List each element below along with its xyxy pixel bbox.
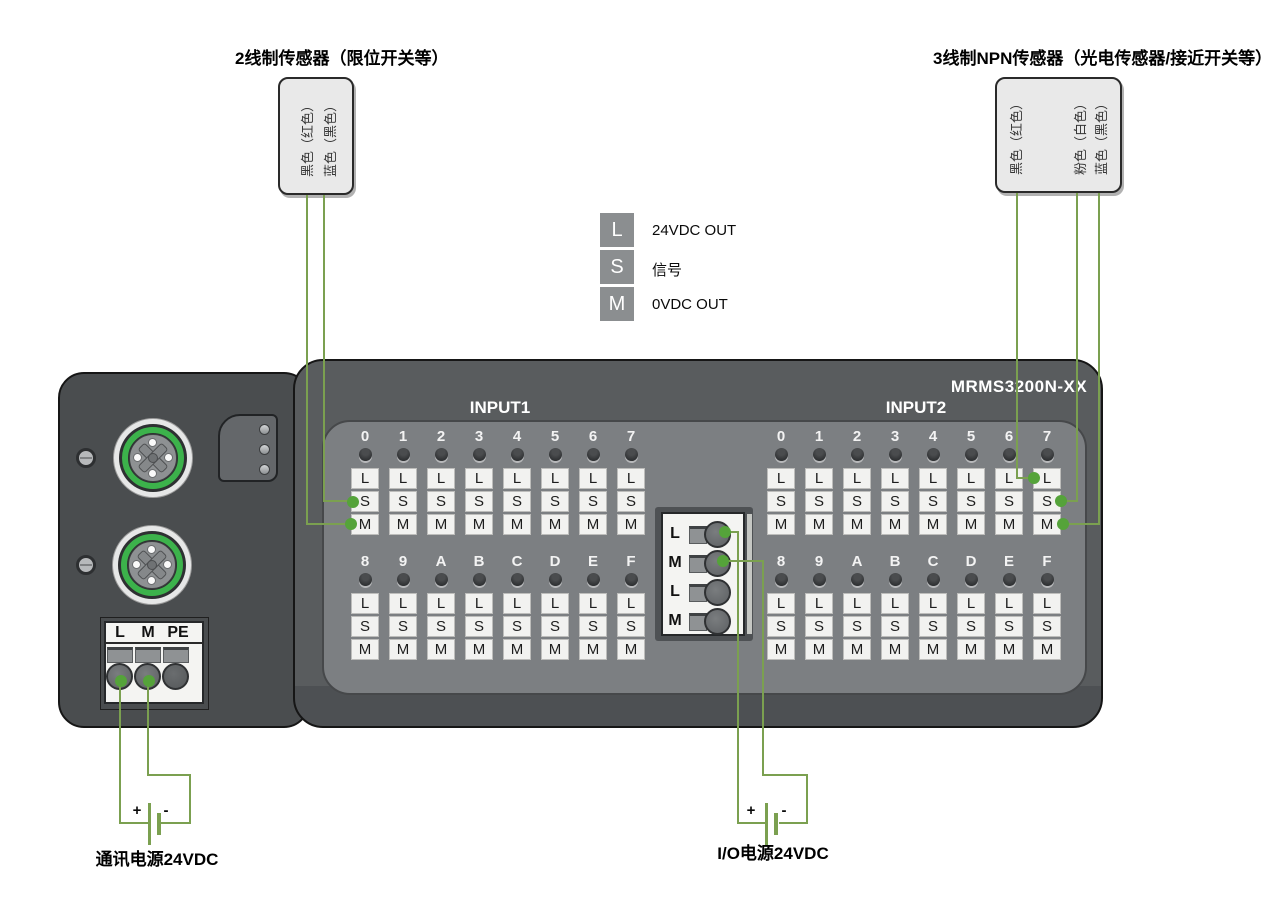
device-model-label: MRMS3200N-XX: [939, 377, 1099, 397]
sensor3-wire-label-blue: 蓝色（黑色）: [1094, 81, 1110, 191]
wire-io-m-jog: [762, 774, 808, 776]
channel-led-indicator: [511, 573, 524, 586]
comm-battery-minus-sign: -: [158, 802, 174, 819]
terminal-s-box[interactable]: S: [1033, 616, 1061, 637]
terminal-m-box[interactable]: M: [541, 639, 569, 660]
power-terminal-hole-pe[interactable]: [162, 663, 189, 690]
m12-pin: [147, 545, 156, 554]
legend-key-l: L: [600, 213, 634, 247]
terminal-s-box[interactable]: S: [805, 616, 833, 637]
legend-label-m: 0VDC OUT: [652, 296, 728, 313]
channel-number: 3: [475, 428, 483, 446]
terminal-l-box[interactable]: L: [957, 468, 985, 489]
channel-column-F: FLSM: [1033, 553, 1061, 660]
terminal-l-box[interactable]: L: [465, 468, 493, 489]
io-terminal-hole-l2[interactable]: [704, 579, 731, 606]
terminal-l-box[interactable]: L: [767, 468, 795, 489]
channel-led-indicator: [1003, 448, 1016, 461]
channel-column-B: BLSM: [465, 553, 493, 660]
channel-led-indicator: [359, 448, 372, 461]
power-terminal-label-l: L: [110, 624, 130, 642]
channel-led-indicator: [549, 448, 562, 461]
channel-led-indicator: [927, 448, 940, 461]
channel-number: 0: [777, 428, 785, 446]
input1-label: INPUT1: [430, 398, 570, 418]
channel-led-indicator: [435, 573, 448, 586]
channel-column-A: ALSM: [843, 553, 871, 660]
m12-pin: [132, 560, 141, 569]
io-terminal-hole-m2[interactable]: [704, 608, 731, 635]
channel-led-indicator: [397, 448, 410, 461]
channel-led-indicator: [813, 448, 826, 461]
channel-number: F: [626, 553, 635, 571]
connection-dot-io-l: [719, 526, 731, 538]
legend-key-m: M: [600, 287, 634, 321]
sensor2-wire-label-black: 黑色（红色）: [300, 83, 316, 193]
terminal-l-box[interactable]: L: [579, 468, 607, 489]
channel-number: 1: [815, 428, 823, 446]
channel-column-4: 4LSM: [919, 428, 947, 535]
channel-column-3: 3LSM: [465, 428, 493, 535]
channel-number: B: [890, 553, 901, 571]
channel-led-indicator: [397, 573, 410, 586]
terminal-s-box[interactable]: S: [579, 616, 607, 637]
channel-led-indicator: [549, 573, 562, 586]
terminal-m-box[interactable]: M: [843, 639, 871, 660]
terminal-l-box[interactable]: L: [1033, 593, 1061, 614]
comm-battery-plus-sign: +: [129, 802, 145, 819]
channel-column-5: 5LSM: [957, 428, 985, 535]
terminal-l-box[interactable]: L: [503, 468, 531, 489]
terminal-l-box[interactable]: L: [389, 593, 417, 614]
channel-number: 8: [361, 553, 369, 571]
wire-comm-m-jog: [147, 774, 191, 776]
legend-label-s: 信号: [652, 259, 682, 280]
terminal-m-box[interactable]: M: [1033, 639, 1061, 660]
channel-number: 4: [929, 428, 937, 446]
terminal-m-box[interactable]: M: [767, 639, 795, 660]
terminal-s-box[interactable]: S: [957, 491, 985, 512]
wire-io-m-vertical2: [806, 774, 808, 824]
screw-bottom: [76, 555, 96, 575]
channel-column-D: DLSM: [957, 553, 985, 660]
terminal-m-box[interactable]: M: [995, 639, 1023, 660]
channel-number: 8: [777, 553, 785, 571]
channel-number: B: [474, 553, 485, 571]
terminal-m-box[interactable]: M: [503, 514, 531, 535]
wire-io-plus-lead: [737, 822, 765, 824]
power-terminal-divider: [105, 642, 203, 644]
terminal-s-box[interactable]: S: [881, 616, 909, 637]
channel-number: 5: [967, 428, 975, 446]
terminal-l-box[interactable]: L: [351, 468, 379, 489]
terminal-m-box[interactable]: M: [427, 514, 455, 535]
channel-number: A: [436, 553, 447, 571]
channel-led-indicator: [927, 573, 940, 586]
terminal-s-box[interactable]: S: [503, 616, 531, 637]
channel-column-8: 8LSM: [767, 553, 795, 660]
terminal-s-box[interactable]: S: [767, 616, 795, 637]
terminal-s-box[interactable]: S: [881, 491, 909, 512]
terminal-s-box[interactable]: S: [995, 616, 1023, 637]
channel-number: 6: [589, 428, 597, 446]
terminal-m-box[interactable]: M: [541, 514, 569, 535]
channel-led-indicator: [435, 448, 448, 461]
terminal-s-box[interactable]: S: [617, 616, 645, 637]
m12-connector-bottom[interactable]: [112, 525, 192, 605]
connection-dot-input2-ch7-s: [1055, 495, 1067, 507]
terminal-m-box[interactable]: M: [617, 639, 645, 660]
comm-battery-plus-plate: [148, 803, 151, 845]
channel-column-D: DLSM: [541, 553, 569, 660]
channel-number: 9: [399, 553, 407, 571]
terminal-s-box[interactable]: S: [767, 491, 795, 512]
terminal-s-box[interactable]: S: [843, 491, 871, 512]
channel-number: F: [1042, 553, 1051, 571]
connection-dot-comm-m: [143, 675, 155, 687]
channel-number: 3: [891, 428, 899, 446]
wire-comm-m-vertical2: [189, 774, 191, 824]
wire-sensor2-black-vertical: [306, 195, 308, 525]
terminal-s-box[interactable]: S: [389, 491, 417, 512]
channel-led-indicator: [965, 448, 978, 461]
terminal-m-box[interactable]: M: [579, 514, 607, 535]
channel-column-9: 9LSM: [805, 553, 833, 660]
terminal-m-box[interactable]: M: [919, 639, 947, 660]
channel-column-6: 6LSM: [579, 428, 607, 535]
sensor3-wire-label-black: 黑色（红色）: [1009, 81, 1025, 191]
screw-slot: [80, 457, 92, 459]
terminal-s-box[interactable]: S: [465, 491, 493, 512]
terminal-s-box[interactable]: S: [465, 616, 493, 637]
terminal-m-box[interactable]: M: [767, 514, 795, 535]
terminal-l-box[interactable]: L: [919, 593, 947, 614]
terminal-l-box[interactable]: L: [767, 593, 795, 614]
terminal-s-box[interactable]: S: [617, 491, 645, 512]
channel-led-indicator: [1041, 448, 1054, 461]
m12-pin: [147, 576, 156, 585]
channel-led-indicator: [813, 573, 826, 586]
channel-led-indicator: [359, 573, 372, 586]
m12-connector-top[interactable]: [113, 418, 193, 498]
terminal-l-box[interactable]: L: [427, 468, 455, 489]
channel-number: 9: [815, 553, 823, 571]
channel-led-indicator: [587, 448, 600, 461]
terminal-l-box[interactable]: L: [617, 468, 645, 489]
channel-column-7: 7LSM: [617, 428, 645, 535]
connection-dot-io-m: [717, 555, 729, 567]
terminal-m-box[interactable]: M: [617, 514, 645, 535]
channel-led-indicator: [965, 573, 978, 586]
terminal-l-box[interactable]: L: [843, 593, 871, 614]
connection-dot-comm-l: [115, 675, 127, 687]
status-led: [259, 424, 270, 435]
m12-pin: [148, 469, 157, 478]
io-terminal-label-m1: M: [665, 554, 685, 572]
power-terminal-label-pe: PE: [164, 624, 192, 642]
channel-number: 4: [513, 428, 521, 446]
channel-led-indicator: [889, 573, 902, 586]
m12-center-hole: [148, 453, 158, 463]
channel-led-indicator: [625, 448, 638, 461]
terminal-m-box[interactable]: M: [351, 639, 379, 660]
terminal-m-box[interactable]: M: [503, 639, 531, 660]
power-terminal-label-m: M: [138, 624, 158, 642]
sensor2-wire-label-blue: 蓝色（黑色）: [323, 83, 339, 193]
channel-column-C: CLSM: [503, 553, 531, 660]
io-terminal-label-m2: M: [665, 612, 685, 630]
m12-center-hole: [147, 560, 157, 570]
channel-number: 0: [361, 428, 369, 446]
terminal-l-box[interactable]: L: [541, 593, 569, 614]
input1-row1-channel-grid: 0LSM1LSM2LSM3LSM4LSM5LSM6LSM7LSM: [351, 428, 645, 535]
terminal-s-box[interactable]: S: [389, 616, 417, 637]
sensor3-title: 3线制NPN传感器（光电传感器/接近开关等）: [933, 44, 1272, 69]
terminal-s-box[interactable]: S: [579, 491, 607, 512]
terminal-l-box[interactable]: L: [351, 593, 379, 614]
input2-row2-channel-grid: 8LSM9LSMALSMBLSMCLSMDLSMELSMFLSM: [767, 553, 1061, 660]
terminal-s-box[interactable]: S: [427, 491, 455, 512]
terminal-m-box[interactable]: M: [881, 514, 909, 535]
channel-column-A: ALSM: [427, 553, 455, 660]
channel-column-1: 1LSM: [805, 428, 833, 535]
terminal-l-box[interactable]: L: [427, 593, 455, 614]
channel-number: 2: [853, 428, 861, 446]
wire-comm-l-vertical: [119, 683, 121, 824]
terminal-l-box[interactable]: L: [541, 468, 569, 489]
channel-number: 7: [627, 428, 635, 446]
channel-column-9: 9LSM: [389, 553, 417, 660]
wire-comm-m-vertical1: [147, 683, 149, 776]
wiring-diagram: 2线制传感器（限位开关等） 3线制NPN传感器（光电传感器/接近开关等） 黑色（…: [0, 0, 1280, 913]
terminal-l-box[interactable]: L: [579, 593, 607, 614]
status-led: [259, 444, 270, 455]
terminal-l-box[interactable]: L: [617, 593, 645, 614]
channel-led-indicator: [473, 448, 486, 461]
terminal-l-box[interactable]: L: [503, 593, 531, 614]
terminal-l-box[interactable]: L: [805, 468, 833, 489]
channel-column-5: 5LSM: [541, 428, 569, 535]
terminal-m-box[interactable]: M: [579, 639, 607, 660]
terminal-m-box[interactable]: M: [389, 514, 417, 535]
wire-comm-plus-lead: [119, 822, 148, 824]
channel-led-indicator: [851, 573, 864, 586]
channel-number: C: [928, 553, 939, 571]
connection-dot-input1-ch0-m: [345, 518, 357, 530]
comm-power-label: 通讯电源24VDC: [72, 845, 242, 870]
screw-top: [76, 448, 96, 468]
channel-number: E: [1004, 553, 1014, 571]
channel-column-0: 0LSM: [767, 428, 795, 535]
terminal-l-box[interactable]: L: [995, 593, 1023, 614]
io-battery-plus-sign: +: [743, 802, 759, 819]
channel-number: 5: [551, 428, 559, 446]
connection-dot-input2-ch7-m: [1057, 518, 1069, 530]
terminal-s-box[interactable]: S: [351, 616, 379, 637]
legend-key-s: S: [600, 250, 634, 284]
connection-dot-input2-ch7-l: [1028, 472, 1040, 484]
m12-pin: [163, 560, 172, 569]
io-terminal-edge: [747, 514, 752, 634]
terminal-s-box[interactable]: S: [843, 616, 871, 637]
channel-number: D: [966, 553, 977, 571]
channel-column-F: FLSM: [617, 553, 645, 660]
wire-io-l-vertical: [737, 531, 739, 824]
terminal-l-box[interactable]: L: [881, 468, 909, 489]
channel-number: D: [550, 553, 561, 571]
terminal-s-box[interactable]: S: [957, 616, 985, 637]
io-battery-minus-sign: -: [776, 802, 792, 819]
terminal-s-box[interactable]: S: [541, 616, 569, 637]
channel-led-indicator: [1041, 573, 1054, 586]
channel-led-indicator: [775, 573, 788, 586]
channel-led-indicator: [1003, 573, 1016, 586]
sensor3-wire-label-pink: 粉色（白色）: [1073, 81, 1089, 191]
channel-number: E: [588, 553, 598, 571]
screw-slot: [80, 564, 92, 566]
channel-column-2: 2LSM: [427, 428, 455, 535]
terminal-l-box[interactable]: L: [805, 593, 833, 614]
wire-comm-minus-lead: [161, 822, 190, 824]
status-led: [259, 464, 270, 475]
channel-column-4: 4LSM: [503, 428, 531, 535]
channel-led-indicator: [473, 573, 486, 586]
m12-pin: [133, 453, 142, 462]
m12-pin: [164, 453, 173, 462]
sensor2-box: [278, 77, 354, 195]
terminal-m-box[interactable]: M: [389, 639, 417, 660]
terminal-m-box[interactable]: M: [995, 514, 1023, 535]
wire-io-minus-lead: [779, 822, 807, 824]
terminal-s-box[interactable]: S: [541, 491, 569, 512]
channel-led-indicator: [851, 448, 864, 461]
io-terminal-label-l2: L: [665, 583, 685, 601]
terminal-m-box[interactable]: M: [881, 639, 909, 660]
io-power-label: I/O电源24VDC: [688, 839, 858, 864]
terminal-s-box[interactable]: S: [427, 616, 455, 637]
channel-column-8: 8LSM: [351, 553, 379, 660]
terminal-m-box[interactable]: M: [427, 639, 455, 660]
channel-number: 1: [399, 428, 407, 446]
channel-column-E: ELSM: [995, 553, 1023, 660]
terminal-s-box[interactable]: S: [503, 491, 531, 512]
io-terminal-label-l1: L: [665, 525, 685, 543]
power-terminal-slot: [135, 647, 161, 663]
terminal-l-box[interactable]: L: [843, 468, 871, 489]
channel-column-3: 3LSM: [881, 428, 909, 535]
wire-sensor2-blue-vertical: [323, 195, 325, 502]
connection-dot-input1-ch0-s: [347, 496, 359, 508]
terminal-s-box[interactable]: S: [995, 491, 1023, 512]
terminal-m-box[interactable]: M: [957, 639, 985, 660]
channel-number: 2: [437, 428, 445, 446]
terminal-l-box[interactable]: L: [957, 593, 985, 614]
channel-number: A: [852, 553, 863, 571]
sensor2-title: 2线制传感器（限位开关等）: [235, 44, 448, 69]
terminal-s-box[interactable]: S: [919, 491, 947, 512]
channel-number: 7: [1043, 428, 1051, 446]
terminal-m-box[interactable]: M: [843, 514, 871, 535]
terminal-s-box[interactable]: S: [805, 491, 833, 512]
power-terminal-slot: [107, 647, 133, 663]
wire-sensor3-black-vertical: [1016, 193, 1018, 479]
channel-column-C: CLSM: [919, 553, 947, 660]
channel-led-indicator: [625, 573, 638, 586]
power-terminal-slot: [163, 647, 189, 663]
channel-led-indicator: [511, 448, 524, 461]
terminal-l-box[interactable]: L: [465, 593, 493, 614]
channel-number: C: [512, 553, 523, 571]
channel-number: 6: [1005, 428, 1013, 446]
channel-led-indicator: [587, 573, 600, 586]
input2-label: INPUT2: [846, 398, 986, 418]
channel-column-6: 6LSM: [995, 428, 1023, 535]
wire-sensor3-pink-vertical: [1076, 193, 1078, 502]
input1-row2-channel-grid: 8LSM9LSMALSMBLSMCLSMDLSMELSMFLSM: [351, 553, 645, 660]
status-led-panel: [218, 414, 278, 482]
terminal-m-box[interactable]: M: [957, 514, 985, 535]
terminal-m-box[interactable]: M: [465, 639, 493, 660]
terminal-s-box[interactable]: S: [919, 616, 947, 637]
terminal-l-box[interactable]: L: [919, 468, 947, 489]
channel-column-E: ELSM: [579, 553, 607, 660]
terminal-m-box[interactable]: M: [805, 514, 833, 535]
channel-column-2: 2LSM: [843, 428, 871, 535]
channel-led-indicator: [775, 448, 788, 461]
channel-column-1: 1LSM: [389, 428, 417, 535]
terminal-m-box[interactable]: M: [805, 639, 833, 660]
terminal-m-box[interactable]: M: [919, 514, 947, 535]
wire-io-m-vertical1: [762, 560, 764, 776]
terminal-m-box[interactable]: M: [465, 514, 493, 535]
legend-label-l: 24VDC OUT: [652, 222, 736, 239]
m12-pin: [148, 438, 157, 447]
terminal-l-box[interactable]: L: [881, 593, 909, 614]
wire-sensor3-blue-vertical: [1098, 193, 1100, 525]
channel-led-indicator: [889, 448, 902, 461]
channel-column-B: BLSM: [881, 553, 909, 660]
terminal-l-box[interactable]: L: [389, 468, 417, 489]
